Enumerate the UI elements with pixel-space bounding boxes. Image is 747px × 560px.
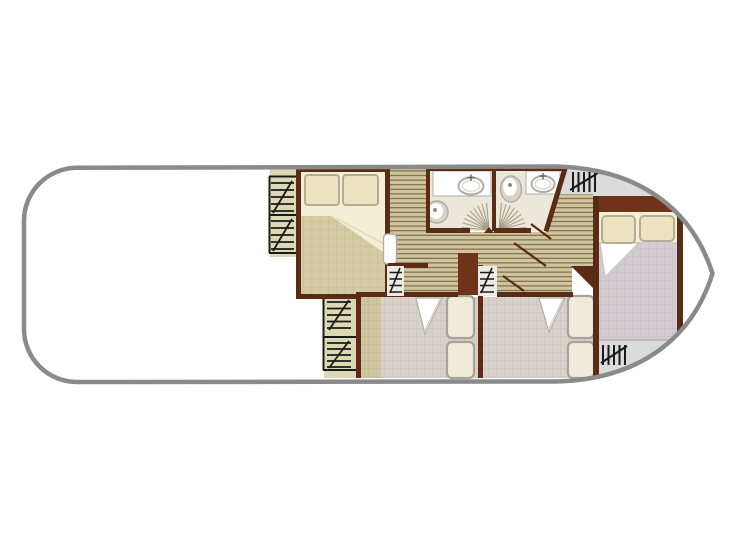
bed-icon [447,342,474,378]
open-door [384,234,397,264]
bed-icon [568,296,594,338]
bow-deck-bottom [597,339,697,383]
twin-cabin-2 [483,292,594,378]
window-strip-left [269,167,298,257]
bathroom-left [426,170,492,231]
cabin-entry-floor [361,297,381,378]
wardrobe-icon [458,253,478,295]
bed-icon [568,342,594,378]
floorplan-svg [0,0,747,560]
pillow-icon [343,175,378,205]
boat-floorplan [0,0,747,560]
window-strip-bottom [323,294,356,378]
corridor-planks [388,232,593,268]
corridor-planks-right [497,268,572,295]
pillow-icon [640,216,674,241]
corridor-planks-left [403,268,458,295]
companionway-steps-icon [390,166,426,232]
pillow-icon [305,175,339,205]
pillow-icon [602,216,635,243]
bed-icon [447,296,474,338]
sliding-door-hatch-icon [478,266,497,296]
toilet-icon [501,176,522,202]
sliding-door-hatch-icon [387,266,404,296]
double-cabin-front [299,170,397,297]
